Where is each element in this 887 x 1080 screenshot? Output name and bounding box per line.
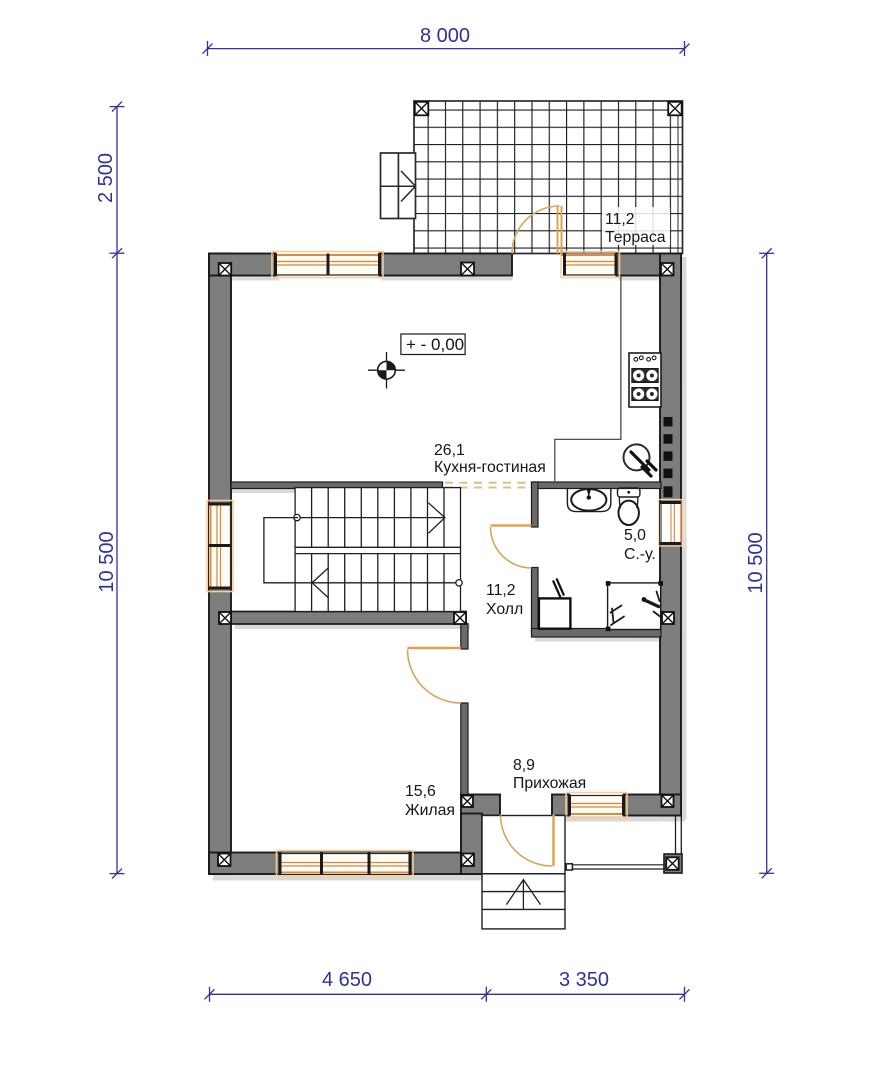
svg-text:15,6: 15,6 xyxy=(405,783,436,800)
svg-text:8 000: 8 000 xyxy=(420,25,470,47)
svg-text:10 500: 10 500 xyxy=(96,531,118,592)
svg-text:Жилая: Жилая xyxy=(405,802,455,819)
svg-text:+ - 0,00: + - 0,00 xyxy=(406,335,464,354)
svg-text:С.-у.: С.-у. xyxy=(624,546,656,563)
svg-text:10 500: 10 500 xyxy=(745,532,767,593)
svg-text:11,2: 11,2 xyxy=(605,211,635,228)
svg-text:26,1: 26,1 xyxy=(434,442,465,459)
svg-text:2 500: 2 500 xyxy=(95,153,117,203)
svg-text:4 650: 4 650 xyxy=(322,969,372,991)
svg-text:5,0: 5,0 xyxy=(624,527,646,544)
svg-text:Холл: Холл xyxy=(486,601,523,618)
svg-text:Терраса: Терраса xyxy=(605,229,666,246)
svg-text:8,9: 8,9 xyxy=(513,757,535,774)
svg-text:Кухня-гостиная: Кухня-гостиная xyxy=(434,459,546,476)
svg-text:Прихожая: Прихожая xyxy=(513,775,586,792)
svg-text:3 350: 3 350 xyxy=(559,969,609,991)
svg-text:11,2: 11,2 xyxy=(486,582,516,599)
